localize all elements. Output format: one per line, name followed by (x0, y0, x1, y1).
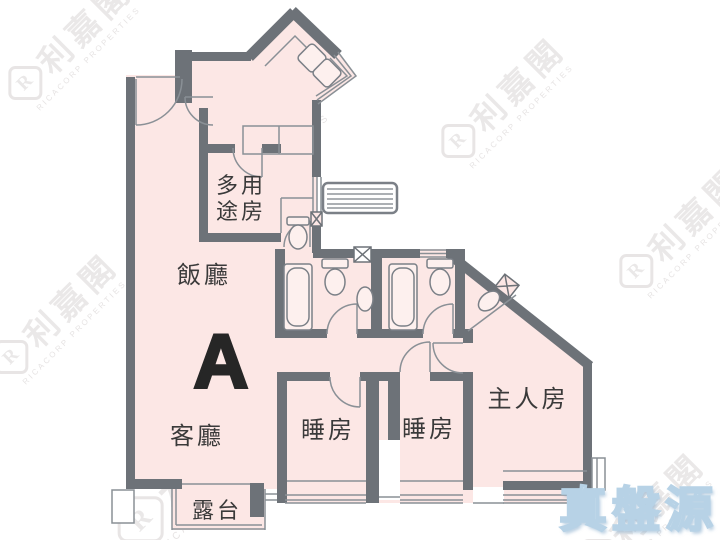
room-label-dining: 飯廳 (177, 263, 231, 289)
bathtub (284, 264, 312, 330)
room-label-bedroom-1: 睡房 (301, 418, 355, 444)
duct (354, 247, 371, 262)
wash-basin (357, 287, 373, 311)
floor-plan-drawing (0, 0, 720, 540)
bathtub (389, 264, 417, 330)
toilet (287, 217, 309, 249)
property-source-logo: 真盤源 (559, 470, 718, 540)
room-label-balcony: 露台 (192, 498, 242, 524)
unit-letter: A (194, 319, 249, 406)
room-label-living: 客廳 (170, 424, 224, 450)
room-label-multi-purpose: 多用途房 (216, 173, 266, 225)
floor-plan-page: R利嘉閣 RICACORP PROPERTIES R利嘉閣 RICACORP P… (0, 0, 720, 540)
room-label-bedroom-2: 睡房 (402, 417, 456, 443)
duct (311, 212, 322, 226)
room-label-master: 主人房 (488, 387, 569, 413)
ac-platform (323, 183, 397, 213)
